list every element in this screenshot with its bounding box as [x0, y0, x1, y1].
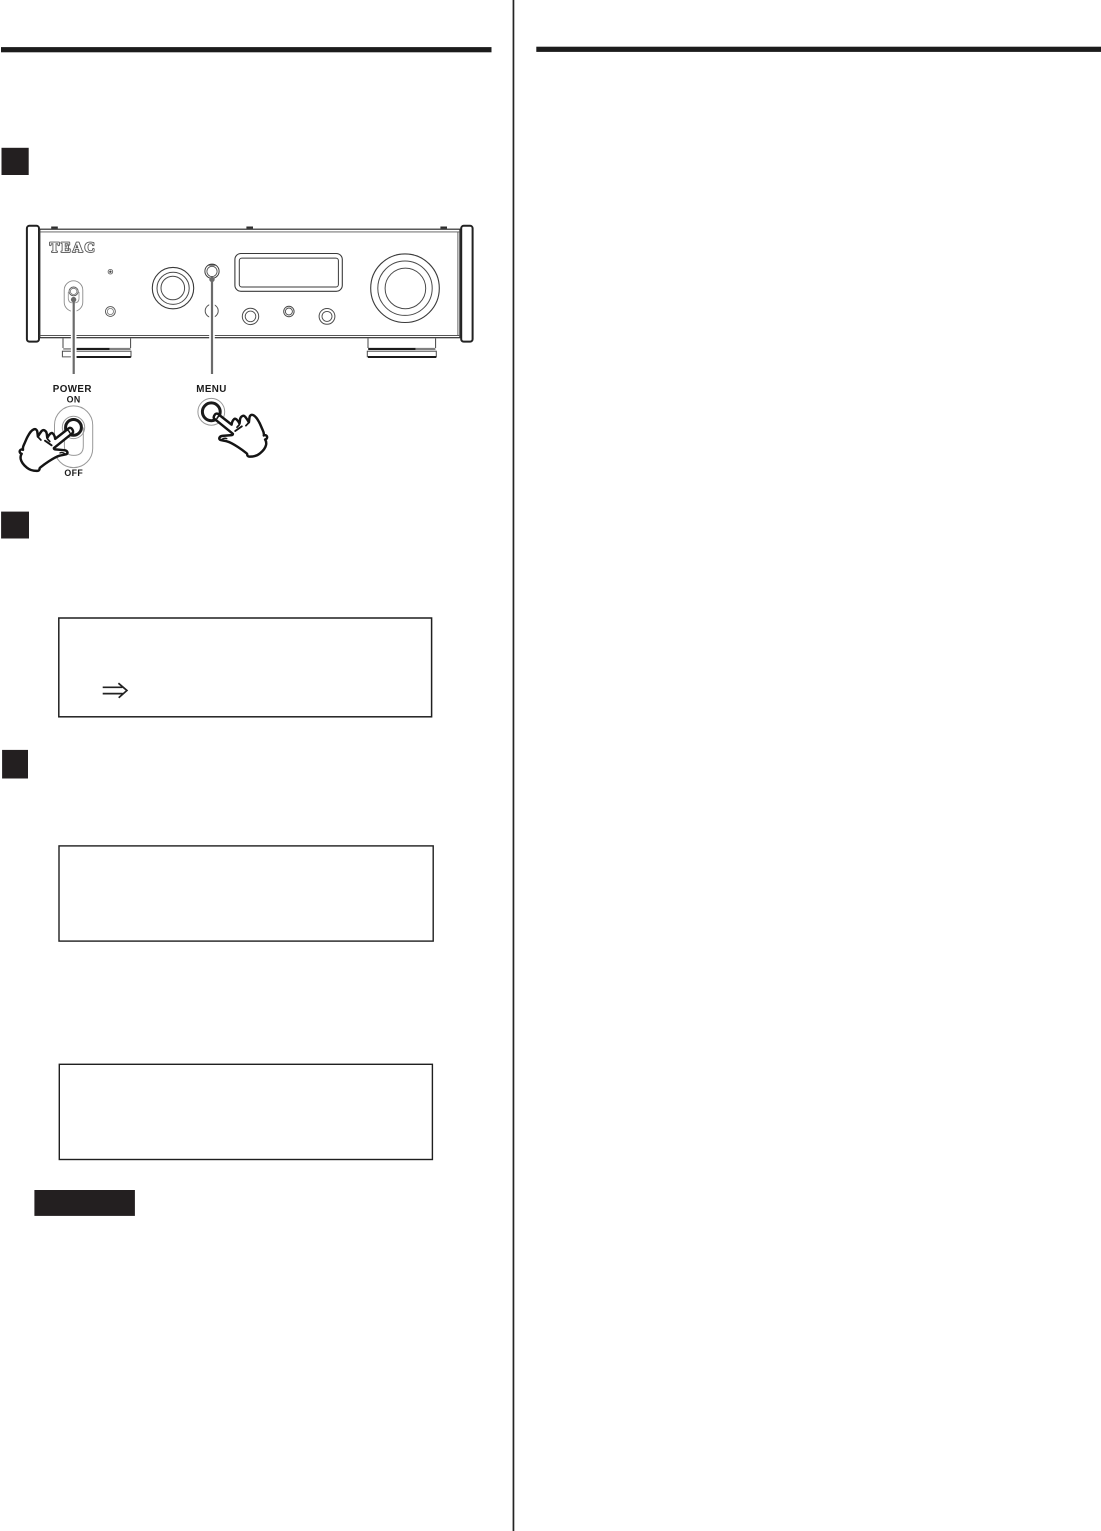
svg-text:OFF: OFF [64, 468, 83, 478]
svg-text:POWER: POWER [53, 384, 92, 395]
svg-text:ON: ON [67, 394, 81, 404]
svg-text:MENU: MENU [196, 384, 226, 395]
svg-text:TEAC: TEAC [50, 240, 95, 256]
